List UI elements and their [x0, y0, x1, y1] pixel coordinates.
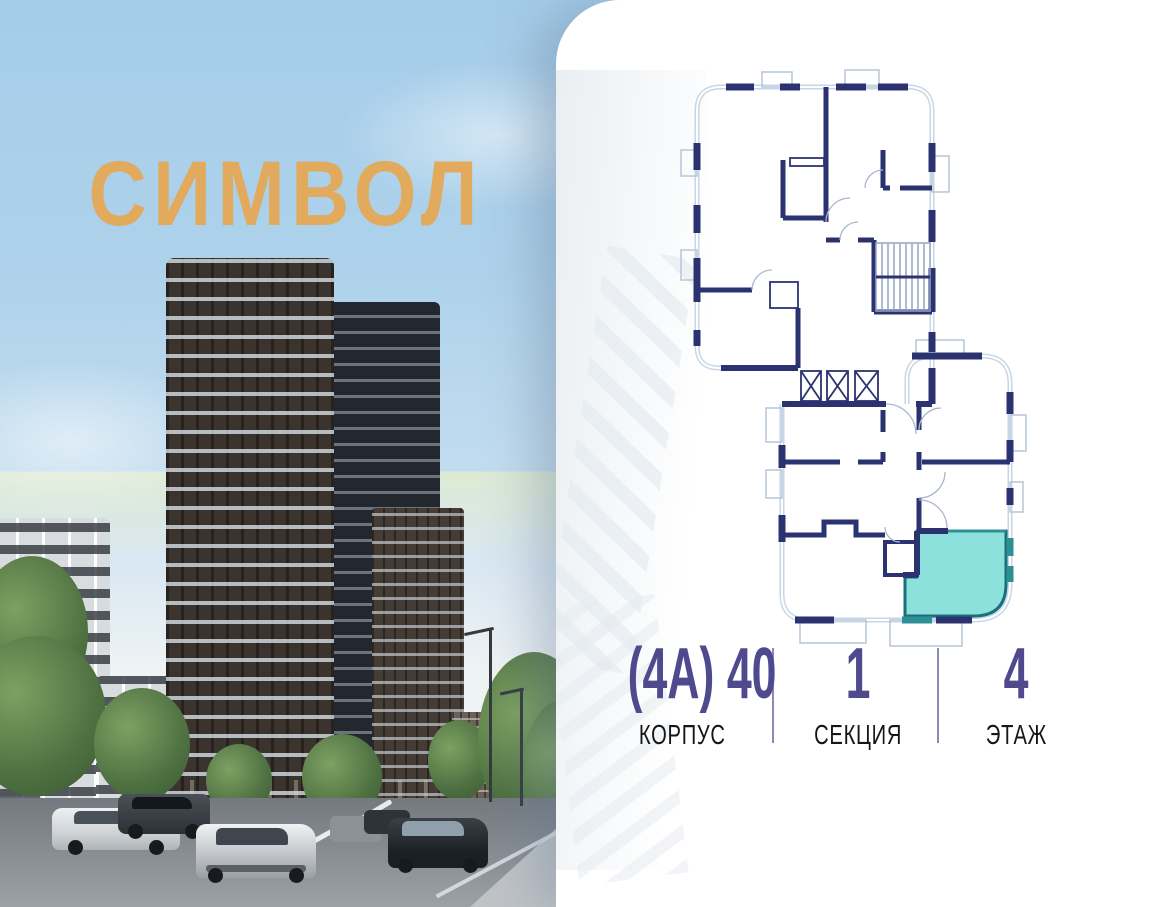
tree [94, 688, 190, 800]
street-lamp [489, 630, 492, 802]
building-value: (4А) 40 [628, 638, 777, 710]
street-lamp [520, 688, 523, 806]
car-black-sedan [388, 818, 488, 868]
building-main-tower [166, 258, 334, 814]
unit-card: СИМВОЛ [0, 0, 1152, 907]
section-value: 1 [846, 638, 871, 710]
stairs-icon [876, 243, 930, 311]
floor-info: 4 ЭТАЖ [916, 638, 1116, 751]
section-label: СЕКЦИЯ [814, 719, 902, 751]
interior-walls [697, 87, 1010, 575]
kitchen-counter [790, 158, 824, 166]
floor-plan [660, 55, 1040, 655]
closet [770, 282, 798, 308]
building-label: КОРПУС [639, 719, 726, 751]
highlighted-unit[interactable] [905, 531, 1006, 616]
project-logo: СИМВОЛ [88, 148, 475, 240]
car-silver-sedan [196, 824, 316, 878]
floor-label: ЭТАЖ [985, 719, 1046, 751]
building-info: (4А) 40 КОРПУС [582, 638, 782, 751]
elevator-icon [801, 371, 878, 401]
floor-value: 4 [1004, 638, 1029, 710]
